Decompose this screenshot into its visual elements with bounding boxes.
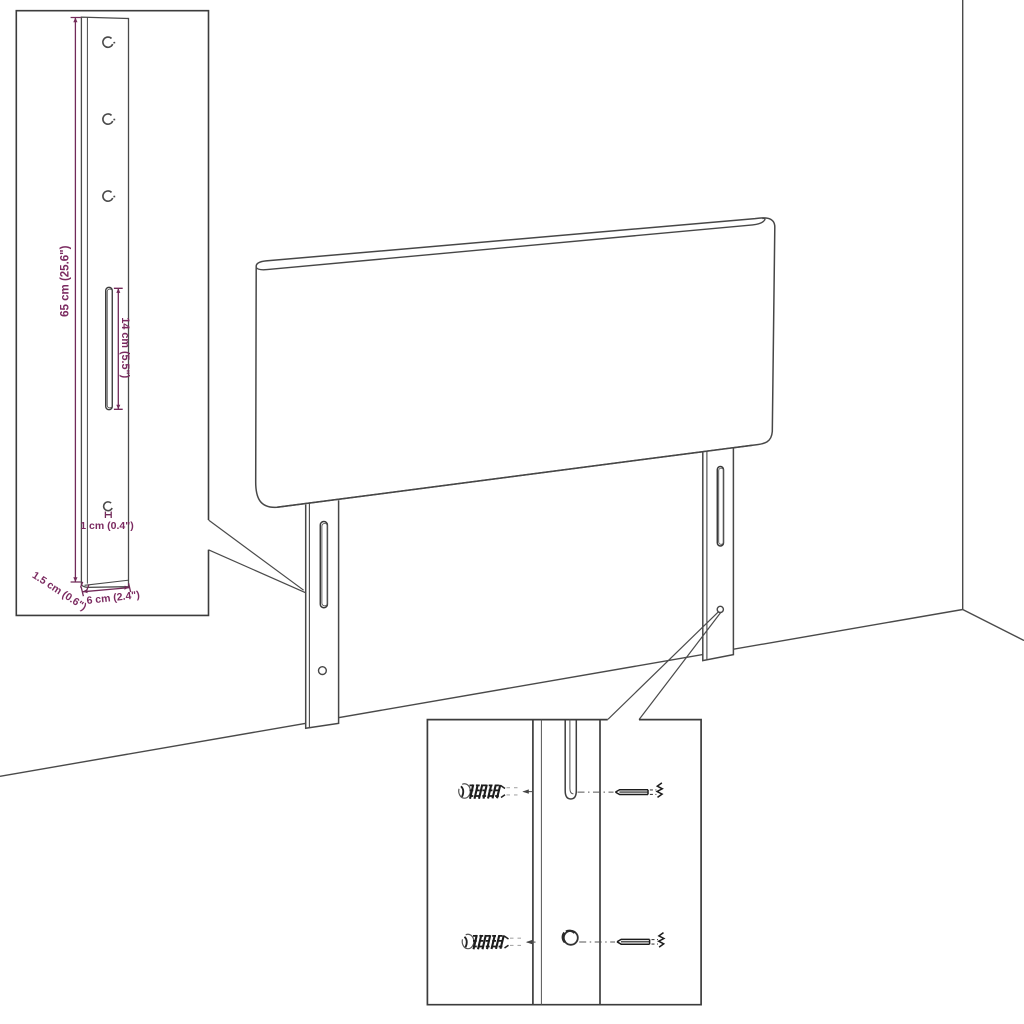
svg-text:14 cm (5.5"): 14 cm (5.5") [119,317,131,378]
svg-text:1 cm (0.4"): 1 cm (0.4") [80,520,133,532]
svg-text:65 cm (25.6"): 65 cm (25.6") [59,245,71,316]
